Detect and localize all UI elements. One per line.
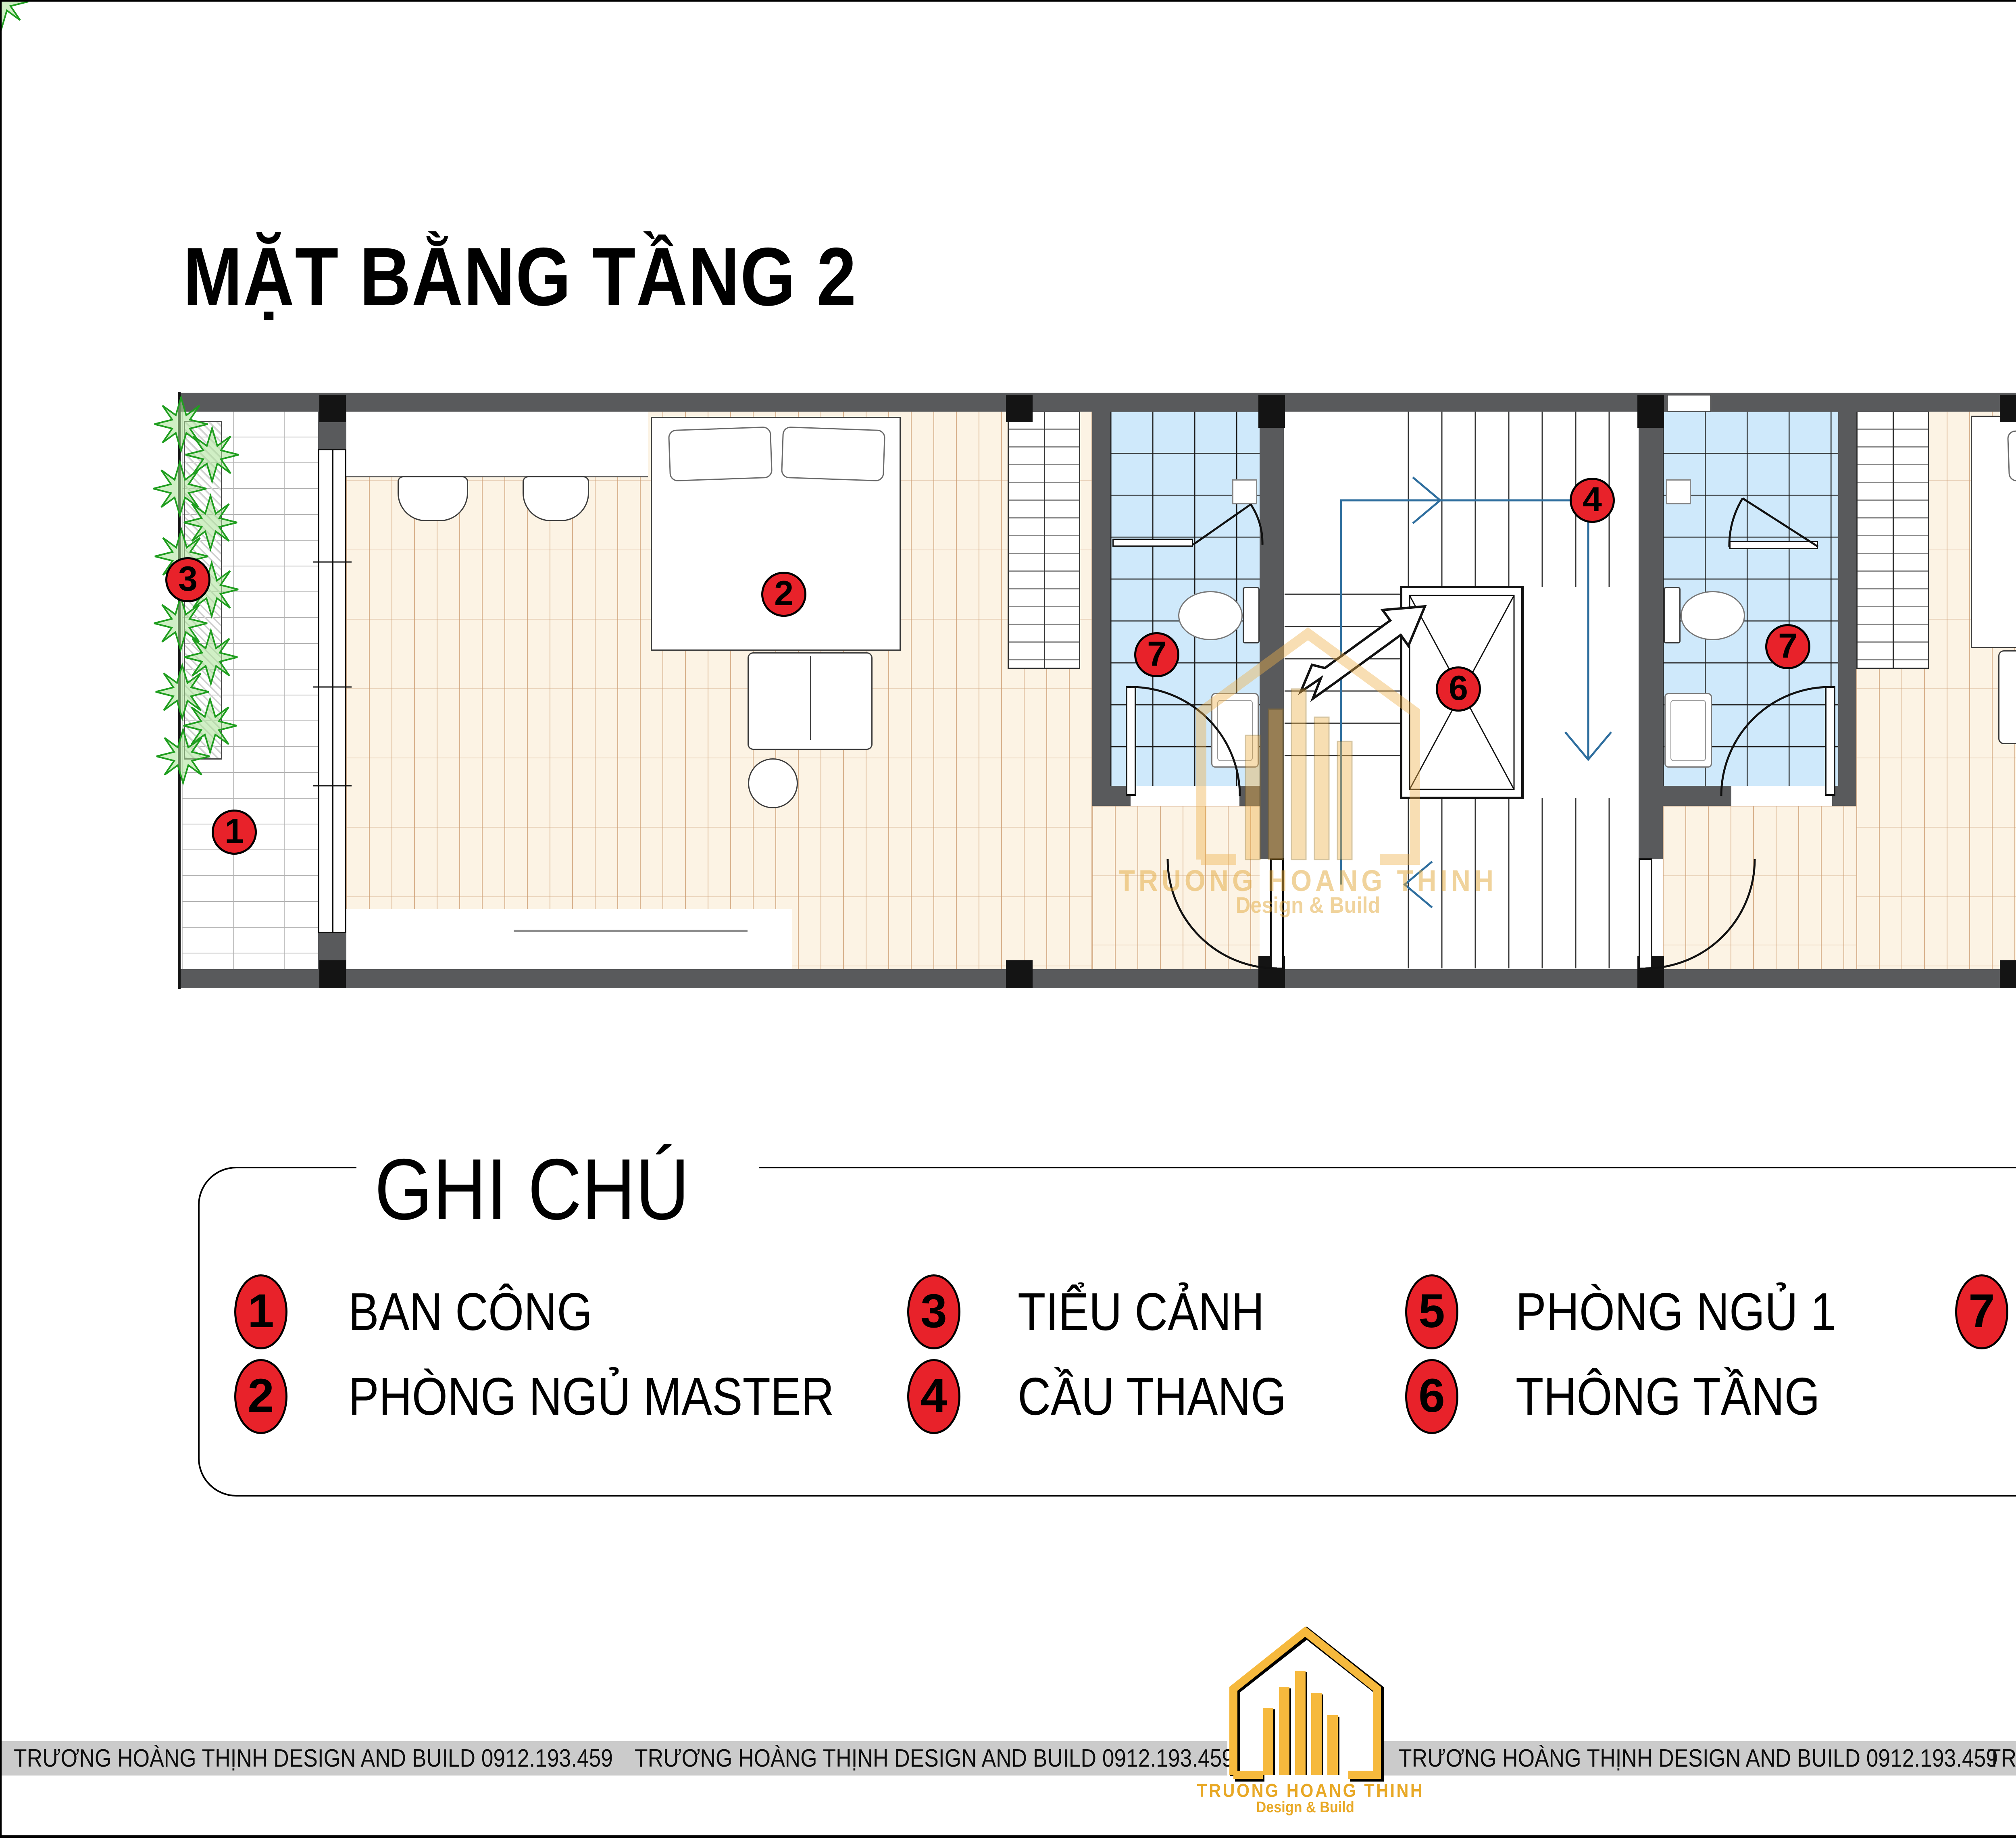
wall-bath2-right [1838,411,1856,806]
bathroom2-sink [1664,693,1712,768]
footer-text-3: TRƯƠNG HOÀNG THỊNH DESIGN AND BUILD 0912… [1399,1741,2016,1776]
watermark-tagline: Design & Build [1066,892,1550,918]
wall-bath1-sill-left [1092,786,1131,806]
column [1006,960,1033,988]
column [1637,395,1664,428]
footer-text-2: TRƯƠNG HOÀNG THỊNH DESIGN AND BUILD 0912… [635,1741,1331,1776]
legend-marker-4: 4 [907,1359,960,1434]
marker-ban-cong: 1 [212,810,257,855]
marker-ve-sinh-1: 7 [1134,632,1179,677]
wall-bath2-sill-left [1663,786,1731,806]
bathroom2-toilet-tank [1664,587,1681,643]
page-bottom-rule [2,1835,2016,1838]
bedroom1-hall-floor [1663,806,1856,969]
bathroom1-toilet-tank [1243,587,1260,643]
window-master-balcony [318,449,346,933]
legend-marker-2: 2 [234,1359,287,1434]
page-title: MẶT BẰNG TẦNG 2 [183,229,966,325]
legend-label-phong-ngu-master: PHÒNG NGỦ MASTER [348,1359,913,1434]
legend-marker-7: 7 [1955,1274,2008,1349]
legend-marker-6: 6 [1405,1359,1458,1434]
legend-label-phong-ngu-1: PHÒNG NGỦ 1 [1516,1274,1888,1349]
bathroom2-shower-glass [1729,541,1818,549]
wall-bath1-left [1092,411,1110,806]
legend-label-cau-thang: CẦU THANG [1018,1359,1330,1434]
floor-plan-sheet: MẶT BẰNG TẦNG 2 [0,0,2016,1838]
legend-label-ban-cong: BAN CÔNG [348,1274,632,1349]
wall-bath2-left [1639,411,1663,859]
legend-marker-3: 3 [907,1274,960,1349]
bathroom1-toilet-bowl [1178,591,1243,640]
column [319,960,346,988]
master-side-table [748,758,798,808]
wall-bath1-sill-right [1239,786,1284,806]
marker-tieu-canh: 3 [165,557,210,602]
bathroom1-sink [1211,693,1259,768]
balcony-railing [178,392,181,989]
master-pillow-2 [781,427,885,482]
wall-top [179,393,2016,412]
footer-logo-name: TRUONG HOANG THINH [1184,1780,1426,1801]
marker-phong-ngu-master: 2 [761,572,806,617]
master-bench [748,652,873,750]
master-wardrobe [1008,411,1080,669]
bathroom2-toilet-bowl [1681,591,1745,640]
bedroom1-wardrobe [1856,411,1929,669]
legend-title: GHI CHÚ [356,1139,759,1239]
master-chair-2 [523,476,589,521]
marker-ve-sinh-2: 7 [1765,624,1810,669]
wall-bath2-sill-right [1832,786,1856,806]
footer-logo-tagline: Design & Build [1184,1799,1426,1816]
column [1637,956,1664,988]
legend-label-thong-tang: THÔNG TẦNG [1516,1359,1870,1434]
footer-text-4: TRƯƠNG HOÀNG THỊNH DESIGN AND BUILD 0912… [1988,1741,2016,1776]
master-console [346,909,792,969]
column [1006,395,1033,422]
plants [2,2,28,28]
wall-bottom [179,969,2016,988]
bedroom1-pillow-1 [2007,428,2016,481]
legend-label-tieu-canh: TIỂU CẢNH [1018,1274,1304,1349]
footer-text-1: TRƯƠNG HOÀNG THỊNH DESIGN AND BUILD 0912… [14,1741,710,1776]
column [2000,960,2016,988]
column [1258,956,1285,988]
column [2000,395,2016,422]
stair-up-arrow [1301,606,1425,699]
bathroom2-shower-head [1666,479,1691,504]
master-pillow-1 [668,427,773,482]
bedroom1-bench [1998,650,2016,744]
legend-marker-1: 1 [234,1274,287,1349]
bathroom2-niche [1667,395,1711,412]
legend-marker-5: 5 [1405,1274,1458,1349]
bathroom1-shower-head [1232,479,1257,504]
bathroom1-shower-glass [1112,539,1193,547]
marker-thong-tang: 6 [1436,666,1481,712]
column [1258,395,1285,428]
marker-cau-thang: 4 [1570,478,1615,523]
master-desk [346,411,648,477]
master-chair-1 [398,476,468,521]
column [319,395,346,422]
